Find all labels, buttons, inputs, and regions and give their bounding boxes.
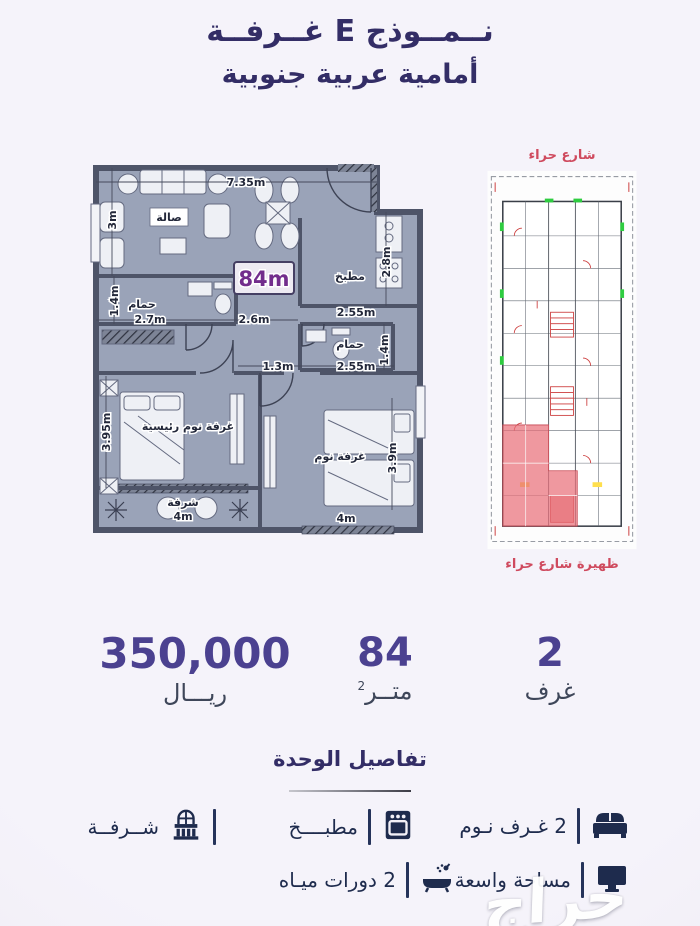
- floorplan: 84m 7.35m 3m 2.8m 2.55m 2.7m 2.6m 1.3m 2…: [88, 158, 428, 538]
- bed-icon: [590, 808, 630, 844]
- dim-bath2-h: 1.4m: [378, 335, 391, 366]
- stat-price: 350,000 ريـــال: [85, 632, 305, 707]
- area-sup: 2: [357, 679, 365, 693]
- separator-bar: [577, 808, 580, 844]
- dim-kitchen-h: 2.8m: [380, 247, 393, 278]
- detail-label: شــرفــة: [87, 815, 159, 839]
- detail-label: مساحة واسعة: [455, 868, 571, 892]
- room-balcony: شرفة: [167, 496, 199, 509]
- dim-top: 7.35m: [227, 176, 266, 189]
- detail-item-bedrooms: 2 غـرف نـوم: [459, 808, 630, 844]
- detail-label: مطبــــخ: [288, 815, 358, 839]
- detail-item-space: مساحة واسعة: [455, 860, 630, 900]
- dim-bedroom-w: 4m: [336, 512, 355, 525]
- dim-kitchen-w: 2.55m: [337, 306, 376, 319]
- area-badge: 84m: [234, 262, 294, 294]
- room-living: صالة: [156, 211, 182, 224]
- separator-bar: [581, 862, 584, 898]
- room-bath2: حمام: [336, 338, 364, 351]
- rooms-value: 2: [495, 632, 605, 674]
- detail-item-balcony: شــرفــة: [87, 808, 216, 846]
- listing-flyer: { "title": { "line1": "نــمــوذج E غــرف…: [0, 0, 700, 926]
- street-label-bottom: ظهيرة شارع حراء: [482, 557, 642, 573]
- room-bath1: حمام: [128, 298, 156, 311]
- dim-hall-mid: 2.6m: [239, 313, 270, 326]
- siteplan: شارع حراء: [482, 148, 642, 572]
- details-heading: تفاصيل الوحدة: [0, 747, 700, 771]
- stat-rooms: 2 غرف: [495, 632, 605, 705]
- stats-row: 350,000 ريـــال 84 متــر2 2 غرف: [0, 632, 700, 732]
- dim-bedroom-h: 3.9m: [386, 443, 399, 474]
- dim-living-h: 3m: [106, 210, 119, 229]
- separator-bar: [213, 809, 216, 845]
- bathtub-icon: [419, 860, 455, 900]
- price-value: 350,000: [85, 632, 305, 676]
- rooms-label: غرف: [495, 677, 605, 705]
- detail-item-kitchen: مطبــــخ: [288, 808, 415, 846]
- dim-bath1-h: 1.4m: [108, 286, 121, 317]
- title-line-2: أمامية عربية جنوبية: [0, 59, 700, 90]
- dim-corridor: 1.3m: [263, 360, 294, 373]
- dim-hall-left: 2.7m: [135, 313, 166, 326]
- room-master: غرفة نوم رئيسية: [142, 420, 234, 433]
- area-value: 84: [320, 632, 450, 674]
- oven-icon: [381, 808, 415, 846]
- price-label: ريـــال: [85, 679, 305, 707]
- dim-bath2-w: 2.55m: [337, 360, 376, 373]
- details-underline: [289, 790, 411, 792]
- room-kitchen: مطبخ: [335, 270, 365, 283]
- separator-bar: [368, 809, 371, 845]
- area-label: متــر2: [320, 677, 450, 705]
- separator-bar: [406, 862, 409, 898]
- stat-area: 84 متــر2: [320, 632, 450, 705]
- detail-label: 2 غـرف نـوم: [459, 814, 567, 838]
- siteplan-drawing: [482, 169, 642, 551]
- area-unit: متــر: [365, 677, 412, 705]
- details-list: 2 غـرف نـوم مطبــــخ: [0, 800, 700, 926]
- tv-icon: [594, 860, 630, 900]
- balcony-icon: [169, 808, 203, 846]
- dim-balcony-w: 4m: [173, 510, 192, 523]
- detail-label: 2 دورات ميـاه: [279, 868, 396, 892]
- floorplan-drawing: 84m 7.35m 3m 2.8m 2.55m 2.7m 2.6m 1.3m 2…: [88, 158, 428, 538]
- dim-master-h: 3.95m: [100, 413, 113, 452]
- title-line-1: نــمــوذج E غــرفــة: [0, 14, 700, 49]
- page-title: نــمــوذج E غــرفــة أمامية عربية جنوبية: [0, 14, 700, 90]
- detail-item-baths: 2 دورات ميـاه: [279, 860, 455, 900]
- room-bedroom: غرفة نوم: [314, 450, 365, 463]
- street-label-top: شارع حراء: [482, 148, 642, 164]
- area-badge-text: 84m: [238, 267, 289, 291]
